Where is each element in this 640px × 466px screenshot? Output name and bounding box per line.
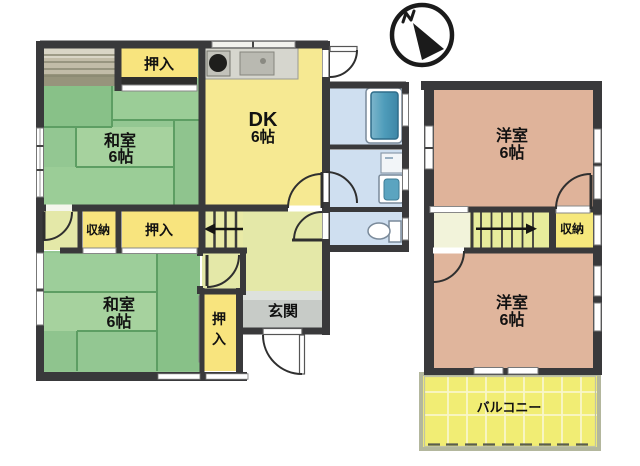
svg-text:収納: 収納	[86, 222, 110, 237]
svg-text:バルコニー: バルコニー	[477, 400, 542, 415]
svg-text:6帖: 6帖	[251, 127, 276, 146]
svg-text:6帖: 6帖	[109, 147, 134, 166]
svg-text:和室: 和室	[104, 131, 136, 150]
svg-text:和室: 和室	[103, 295, 135, 314]
svg-text:押: 押	[212, 311, 226, 327]
svg-text:6帖: 6帖	[500, 143, 525, 162]
svg-text:入: 入	[212, 331, 226, 347]
svg-text:6帖: 6帖	[107, 312, 132, 331]
svg-text:押入: 押入	[144, 55, 174, 73]
svg-text:玄関: 玄関	[268, 302, 298, 320]
svg-text:6帖: 6帖	[500, 310, 525, 329]
svg-text:DK: DK	[249, 109, 278, 131]
svg-text:洋室: 洋室	[496, 126, 528, 145]
svg-text:収納: 収納	[560, 221, 584, 236]
svg-text:押入: 押入	[145, 222, 173, 238]
svg-text:洋室: 洋室	[496, 293, 528, 312]
